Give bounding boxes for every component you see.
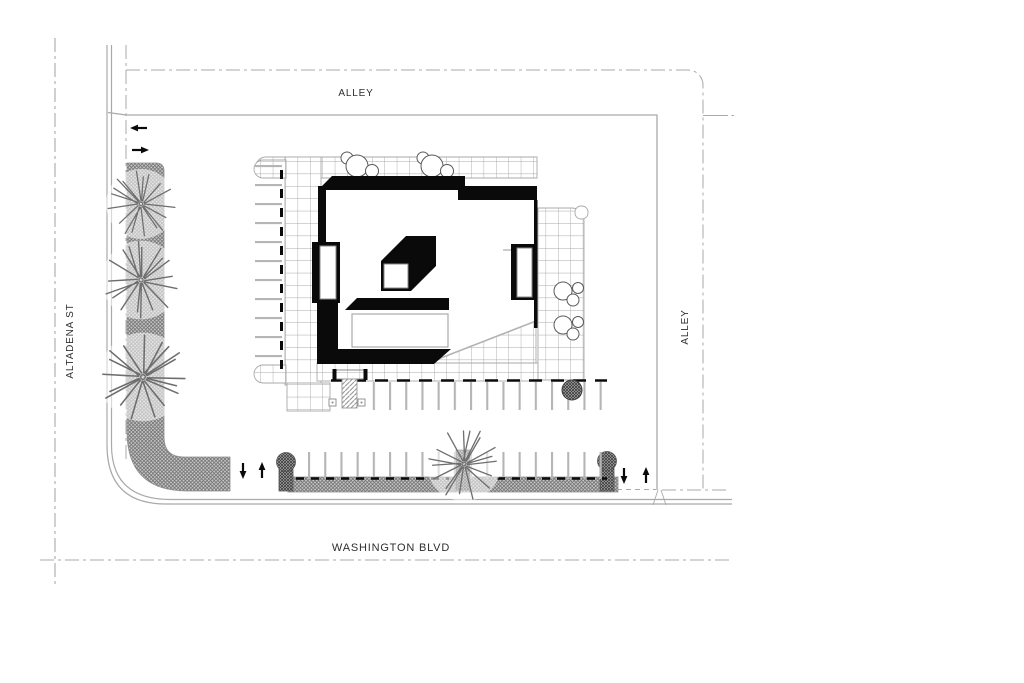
window-glass-east <box>517 248 532 297</box>
east-alley-label: ALLEY <box>680 309 691 344</box>
interior-wall-band <box>345 298 449 310</box>
site-plan-drawing: ALLEY ALTADENA ST ALLEY WASHINGTON BLVD <box>0 0 1024 683</box>
south-street-label: WASHINGTON BLVD <box>332 542 450 554</box>
site-plan-page: ALLEY ALTADENA ST ALLEY WASHINGTON BLVD <box>0 0 1024 683</box>
west-street-label: ALTADENA ST <box>65 303 76 378</box>
roof-band-south <box>317 349 451 364</box>
grid-southwest-apron <box>287 383 330 411</box>
hatched-tree-icon <box>562 380 582 400</box>
roof-band-northwest <box>318 176 465 190</box>
north-alley-label: ALLEY <box>338 88 373 99</box>
roof-band-northeast <box>458 186 537 200</box>
west-parking-stalls <box>255 164 282 374</box>
street-tree-icon <box>106 169 176 239</box>
planter-west <box>277 453 296 492</box>
window-glass-west <box>320 246 336 299</box>
grid-east-tab <box>575 206 588 219</box>
grid-south-band <box>317 363 538 381</box>
wall-west-upper <box>318 186 326 243</box>
access-ramp <box>342 379 357 408</box>
